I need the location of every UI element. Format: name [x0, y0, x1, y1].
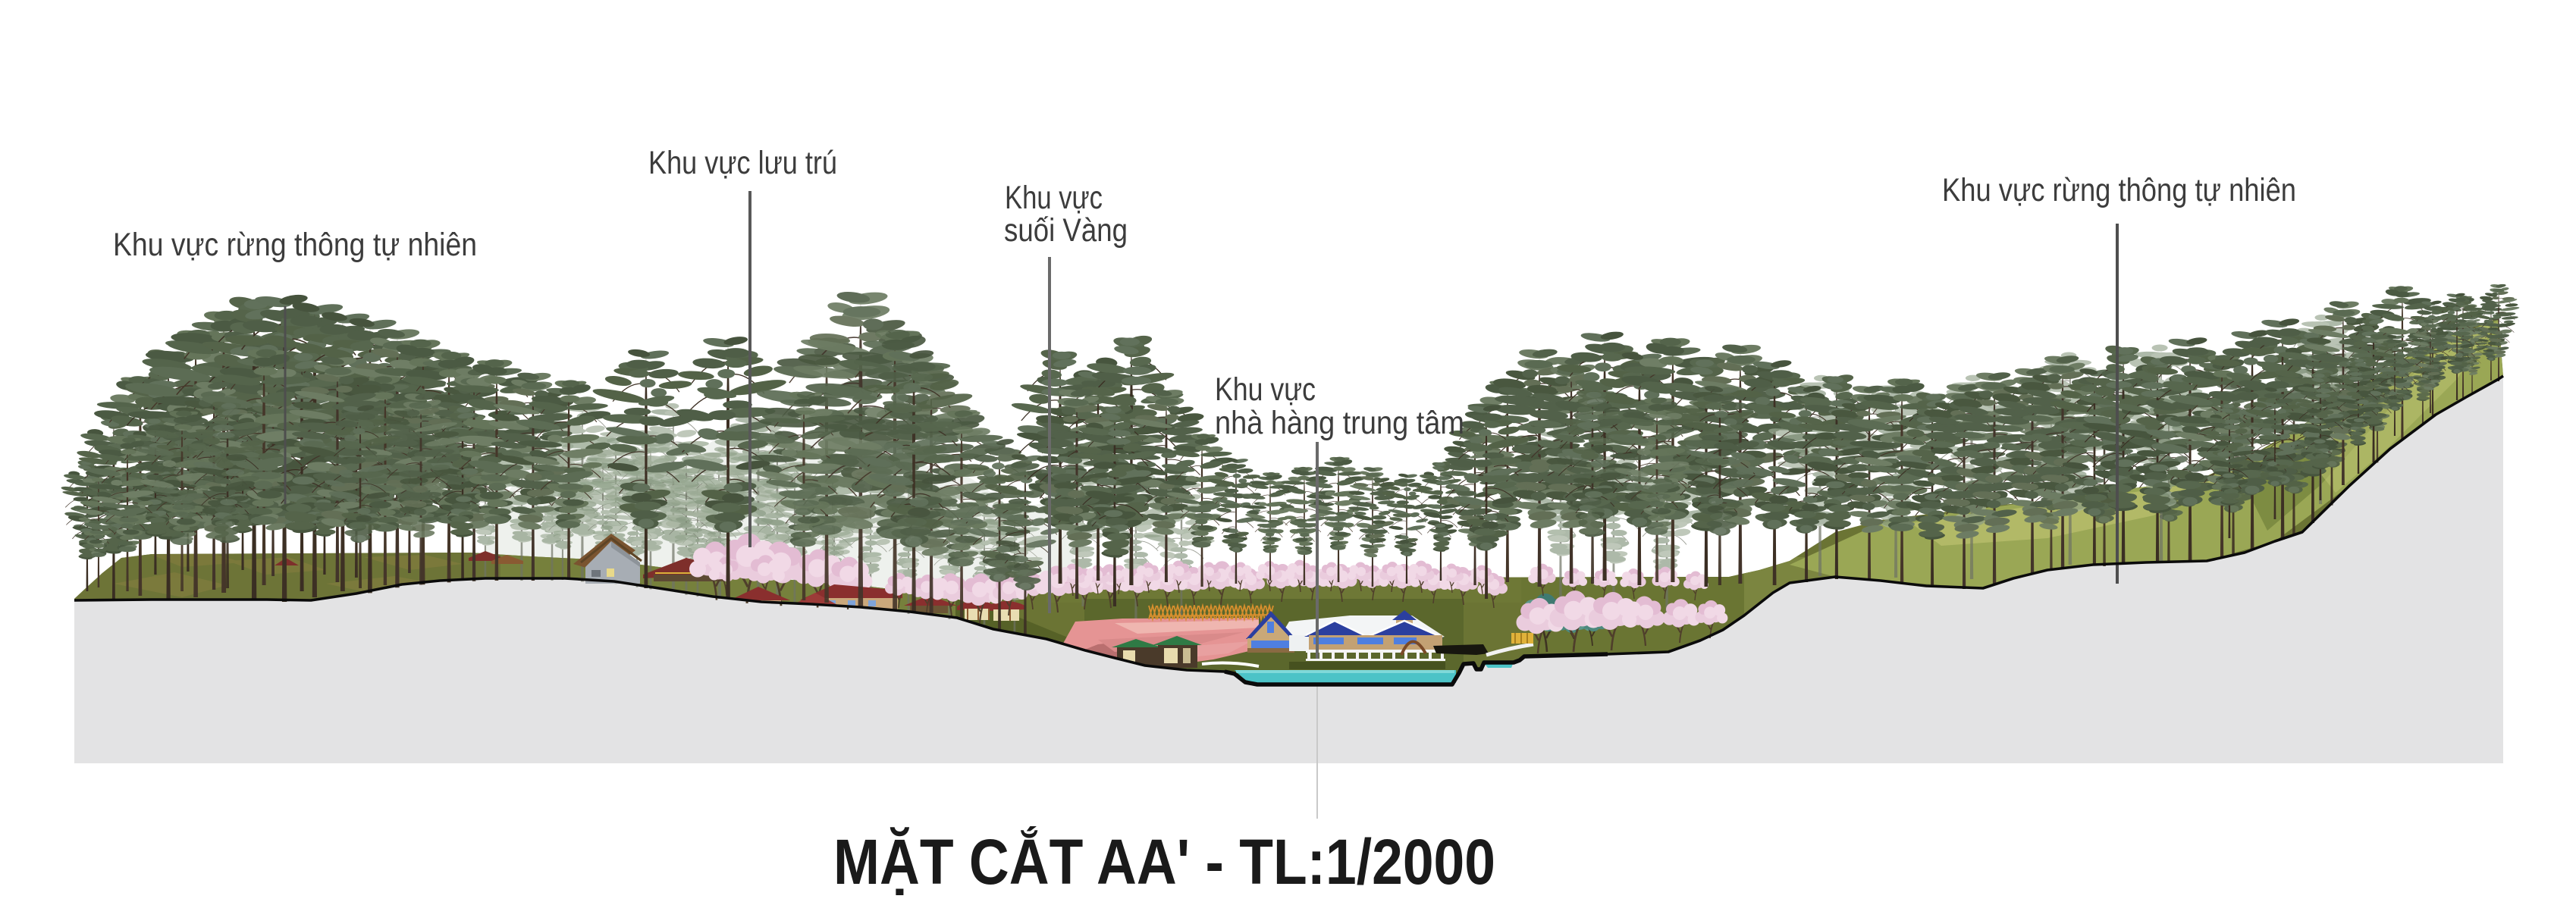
svg-text:nhà hàng trung tâm: nhà hàng trung tâm	[1215, 405, 1464, 441]
svg-text:Khu vực lưu trú: Khu vực lưu trú	[648, 145, 837, 181]
svg-text:suối Vàng: suối Vàng	[1004, 212, 1128, 249]
svg-text:Khu vực rừng thông tự nhiên: Khu vực rừng thông tự nhiên	[113, 227, 477, 263]
svg-text:Khu vực: Khu vực	[1005, 180, 1103, 216]
svg-text:Khu vực: Khu vực	[1215, 371, 1316, 408]
svg-text:MẶT CẮT AA' - TL:1/2000: MẶT CẮT AA' - TL:1/2000	[833, 826, 1495, 897]
svg-text:Khu vực rừng thông tự nhiên: Khu vực rừng thông tự nhiên	[1942, 172, 2296, 208]
